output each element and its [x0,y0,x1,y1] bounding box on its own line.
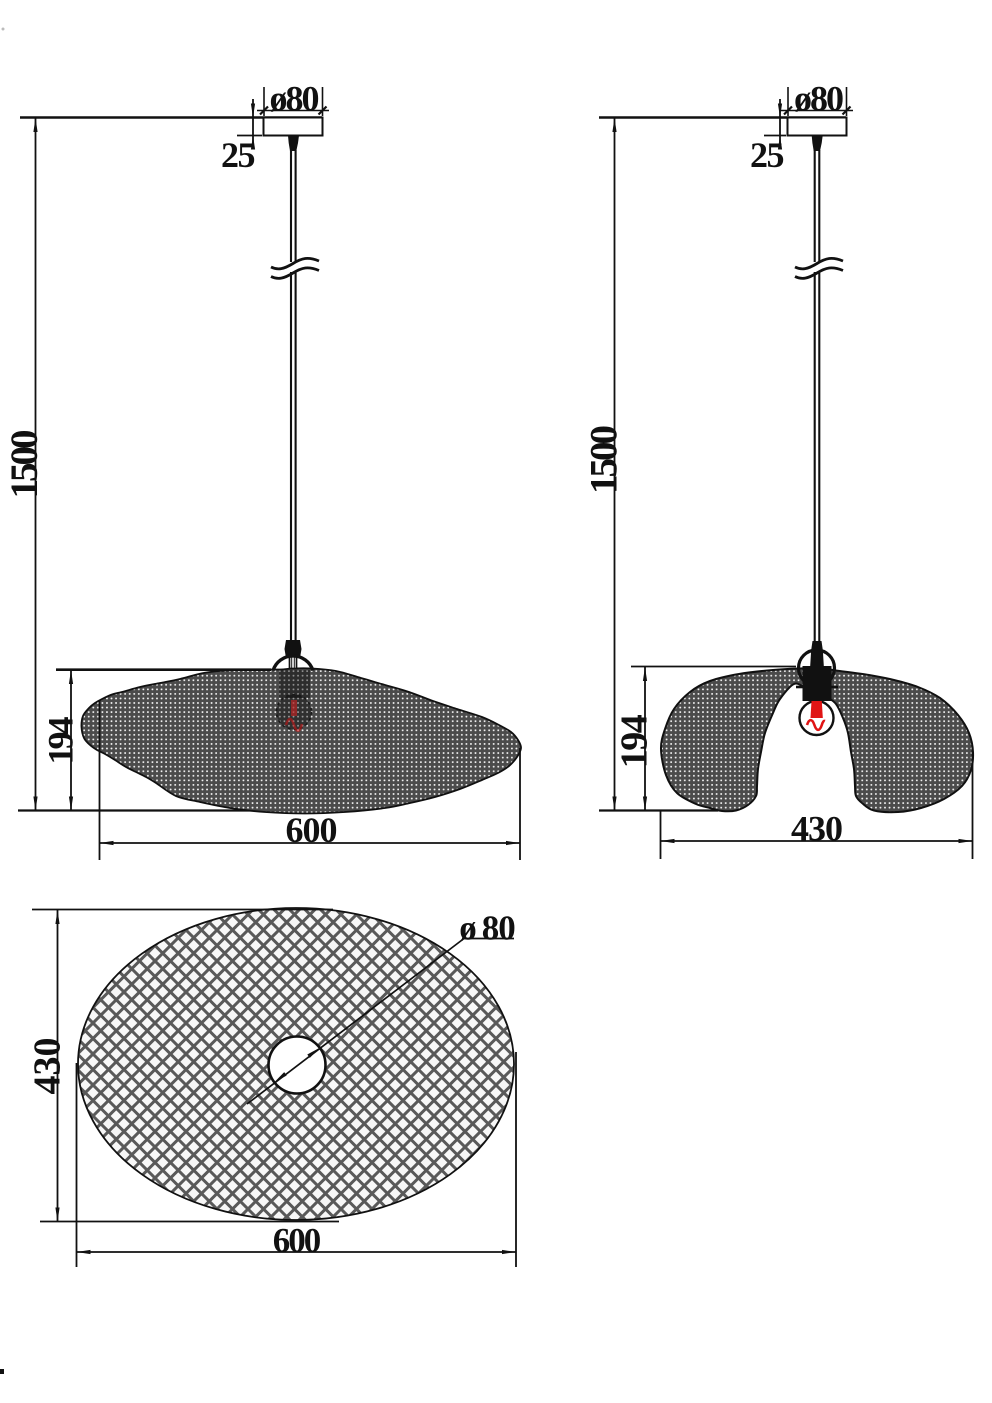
svg-text:ø80: ø80 [270,79,319,119]
svg-text:430: 430 [27,1038,69,1095]
svg-text:25: 25 [750,135,784,175]
svg-text:430: 430 [791,809,842,849]
svg-text:1500: 1500 [583,426,626,495]
svg-text:1500: 1500 [3,430,46,499]
svg-text:194: 194 [41,717,81,765]
svg-text:ø 80: ø 80 [459,909,515,948]
svg-text:25: 25 [221,135,255,175]
svg-text:194: 194 [614,714,656,768]
svg-text:ø80: ø80 [794,79,843,119]
svg-text:600: 600 [286,810,337,850]
svg-text:600: 600 [273,1221,321,1260]
